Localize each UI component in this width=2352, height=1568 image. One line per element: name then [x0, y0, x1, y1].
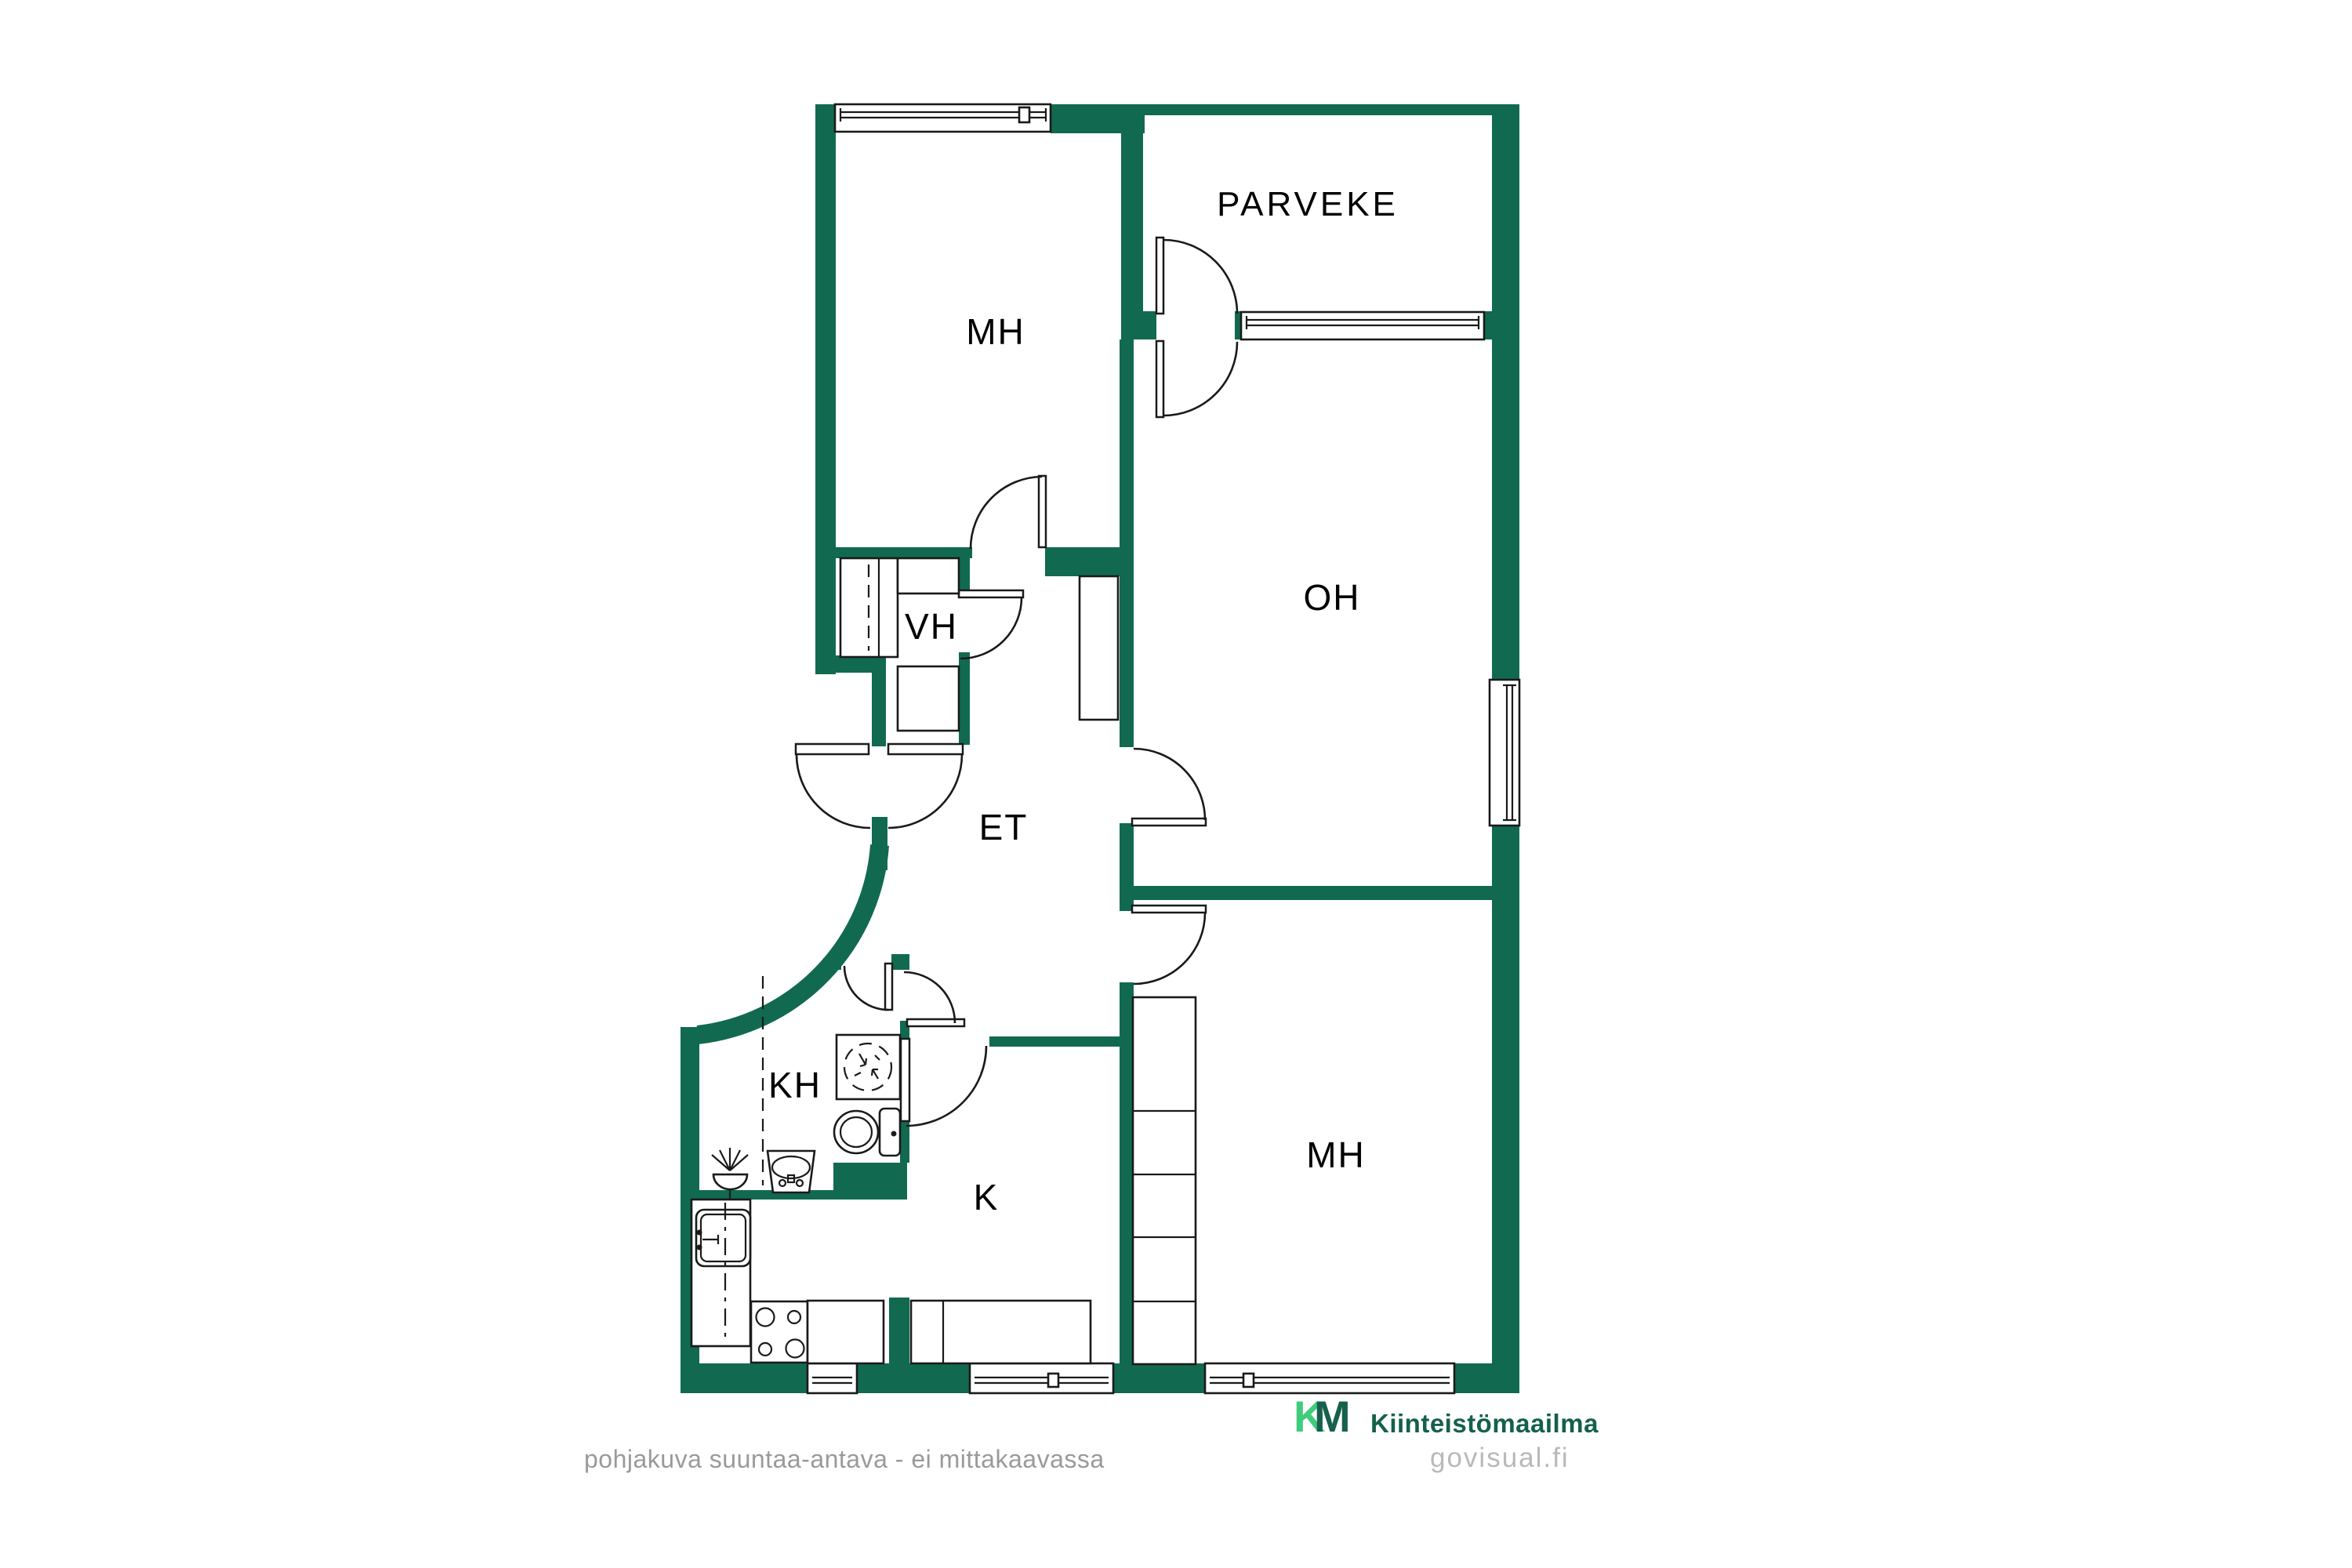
- room-label-mh-top: MH: [966, 310, 1025, 353]
- disclaimer-text: pohjakuva suuntaa-antava - ei mittakaava…: [584, 1445, 1105, 1474]
- wall-segment: [815, 104, 836, 674]
- window-balcony: [1241, 312, 1484, 339]
- door-et-oh: [1132, 749, 1206, 826]
- wall-segment: [1145, 104, 1519, 115]
- km-logo-icon: K M: [1292, 1396, 1370, 1438]
- floorplan-drawing: [0, 0, 2352, 1568]
- door-balcony: [1156, 238, 1237, 417]
- wall-segment: [989, 1036, 1120, 1047]
- wall-segment: [682, 1190, 833, 1200]
- room-label-kh: KH: [768, 1064, 822, 1106]
- wall-segment: [891, 954, 909, 970]
- kitchen-counters: [808, 1301, 1091, 1363]
- wall-segment: [1113, 1363, 1205, 1393]
- wall-segment: [1051, 104, 1145, 133]
- wall-segment: [1484, 311, 1492, 339]
- wall-segment: [1454, 1363, 1519, 1393]
- curved-wall: [698, 845, 880, 1035]
- doors: [796, 238, 1237, 1126]
- wall-segment: [1121, 311, 1156, 339]
- window-kitchen-small: [808, 1363, 857, 1393]
- wall-segment: [1492, 826, 1519, 1393]
- floorplan-page: MH PARVEKE OH VH ET KH K MH pohjakuva su…: [0, 0, 2352, 1568]
- wall-segment: [833, 547, 972, 558]
- kitchen-sink-counter: [691, 1200, 750, 1346]
- toilet: [834, 1109, 900, 1156]
- wall-segment: [1134, 886, 1492, 900]
- logo-letter-m: M: [1314, 1396, 1351, 1438]
- wall-segment: [1120, 823, 1134, 911]
- wall-segment: [1492, 115, 1519, 680]
- window-kitchen-large: [970, 1363, 1113, 1393]
- wall-segment: [889, 1298, 909, 1363]
- door-vh: [959, 590, 1023, 659]
- watermark-text: govisual.fi: [1430, 1443, 1570, 1474]
- wall-segment: [1120, 339, 1134, 747]
- wall-segment: [681, 1363, 808, 1393]
- kh-sink: [768, 1151, 815, 1192]
- window-mh-top: [835, 104, 1051, 132]
- door-mh-top: [971, 476, 1046, 549]
- stove: [751, 1301, 808, 1363]
- hall-cabinet: [898, 666, 959, 731]
- room-label-mh-bottom: MH: [1306, 1134, 1366, 1176]
- room-label-et: ET: [979, 806, 1029, 848]
- wall-segment: [959, 652, 970, 745]
- window-oh-right: [1490, 680, 1519, 826]
- et-closet: [1080, 576, 1118, 720]
- brand-name: Kiinteistömaailma: [1370, 1409, 1599, 1439]
- wall-segment: [857, 1363, 970, 1393]
- room-label-k: K: [974, 1176, 1000, 1218]
- window-mh-bottom: [1205, 1363, 1454, 1393]
- door-entry-double: [796, 744, 963, 828]
- wall-segment: [959, 547, 970, 593]
- door-k: [901, 1039, 986, 1126]
- door-kh: [844, 964, 892, 1010]
- mh-bottom-wardrobe: [1133, 997, 1196, 1364]
- door-et-k-upper: [904, 972, 964, 1026]
- room-label-oh: OH: [1304, 576, 1361, 619]
- door-et-mh-bottom: [1132, 906, 1206, 984]
- room-label-parveke: PARVEKE: [1217, 185, 1399, 224]
- room-label-vh: VH: [905, 605, 958, 648]
- shower: [837, 1035, 900, 1099]
- wall-segment: [1045, 547, 1120, 576]
- wall-segment: [1120, 982, 1134, 1367]
- wall-segment: [872, 673, 886, 746]
- wall-segment: [833, 1163, 907, 1200]
- wall-segment: [1121, 133, 1143, 311]
